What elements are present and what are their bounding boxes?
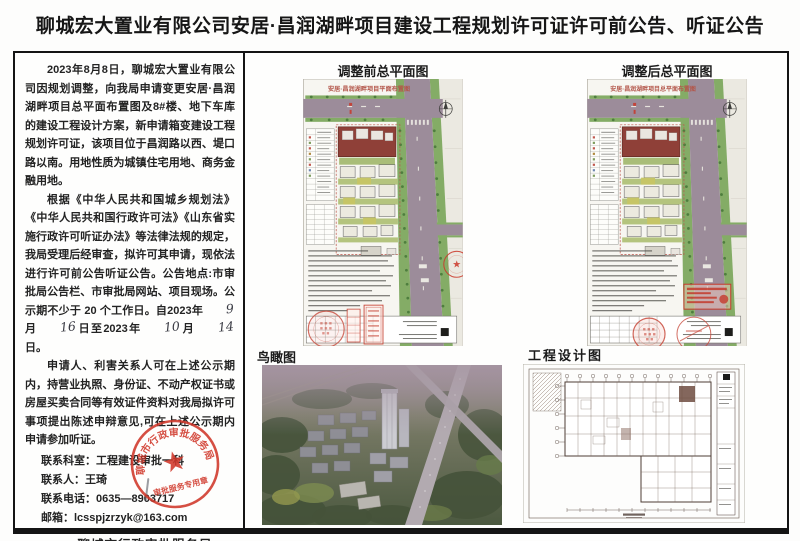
title-block [717, 372, 735, 515]
seal-sub-text: 审批服务专用章 [152, 475, 209, 498]
site-plan-after-title: 安居·昌润湖畔项目总平面布置图 [610, 85, 696, 93]
paragraph-2-text: 根据《中华人民共和国城乡规划法》《中华人民共和国行政许可法》《山东省实施行政许可… [25, 194, 235, 317]
notice-paragraph-1: 2023年8月8日，聊城宏大置业有限公司因规划调整，向我局申请变更安居·昌润湖畔… [25, 61, 235, 191]
aerial-view-label: 鸟瞰图 [257, 347, 296, 366]
handwritten-start-day: 16 [37, 320, 78, 336]
handwritten-start-month: 9 [203, 302, 236, 317]
site-plan-before-image: 安居·昌润湖畔项目平面布置图 [303, 79, 463, 346]
seal-star-icon [162, 449, 187, 473]
design-drawing-label: 工程设计图 [528, 345, 603, 364]
paragraph-2-end: 日。 [25, 342, 47, 354]
notice-text-column: 2023年8月8日，聊城宏大置业有限公司因规划调整，向我局申请变更安居·昌润湖畔… [15, 53, 245, 528]
notice-frame: 2023年8月8日，聊城宏大置业有限公司因规划调整，向我局申请变更安居·昌润湖畔… [13, 51, 789, 534]
site-plan-before-title: 安居·昌润湖畔项目平面布置图 [328, 85, 410, 93]
floor-plan-image [523, 364, 745, 523]
site-plan-after-image: 安居·昌润湖畔项目总平面布置图 [587, 79, 747, 346]
hatched-area [533, 373, 561, 411]
handwritten-end-day: 14 [195, 320, 236, 336]
page-title: 聊城宏大置业有限公司安居·昌润湖畔项目建设工程规划许可证许可前公告、听证公告 [0, 11, 800, 38]
official-seal: 聊城市行政审批服务局 审批服务专用章 [127, 416, 223, 512]
signature-block: 聊城市行政审批服务局 2023年 月 日 [25, 534, 235, 541]
red-info-stamp [684, 284, 731, 309]
before-plan-label: 调整前总平面图 [302, 61, 464, 80]
notice-page: 聊城宏大置业有限公司安居·昌润湖畔项目建设工程规划许可证许可前公告、听证公告 2… [0, 0, 800, 541]
month-char: 月 [25, 323, 37, 335]
paragraph-2-mid: 日至2023年 [77, 323, 141, 335]
notice-paragraph-2: 根据《中华人民共和国城乡规划法》《中华人民共和国行政许可法》《山东省实施行政许可… [25, 191, 235, 358]
after-plan-label: 调整后总平面图 [586, 61, 748, 80]
handwritten-end-month: 10 [141, 320, 182, 336]
aerial-view-image [262, 365, 502, 525]
agency-name: 聊城市行政审批服务局 [55, 534, 235, 541]
haze-overlay [262, 365, 502, 435]
month-char-2: 月 [181, 323, 195, 335]
